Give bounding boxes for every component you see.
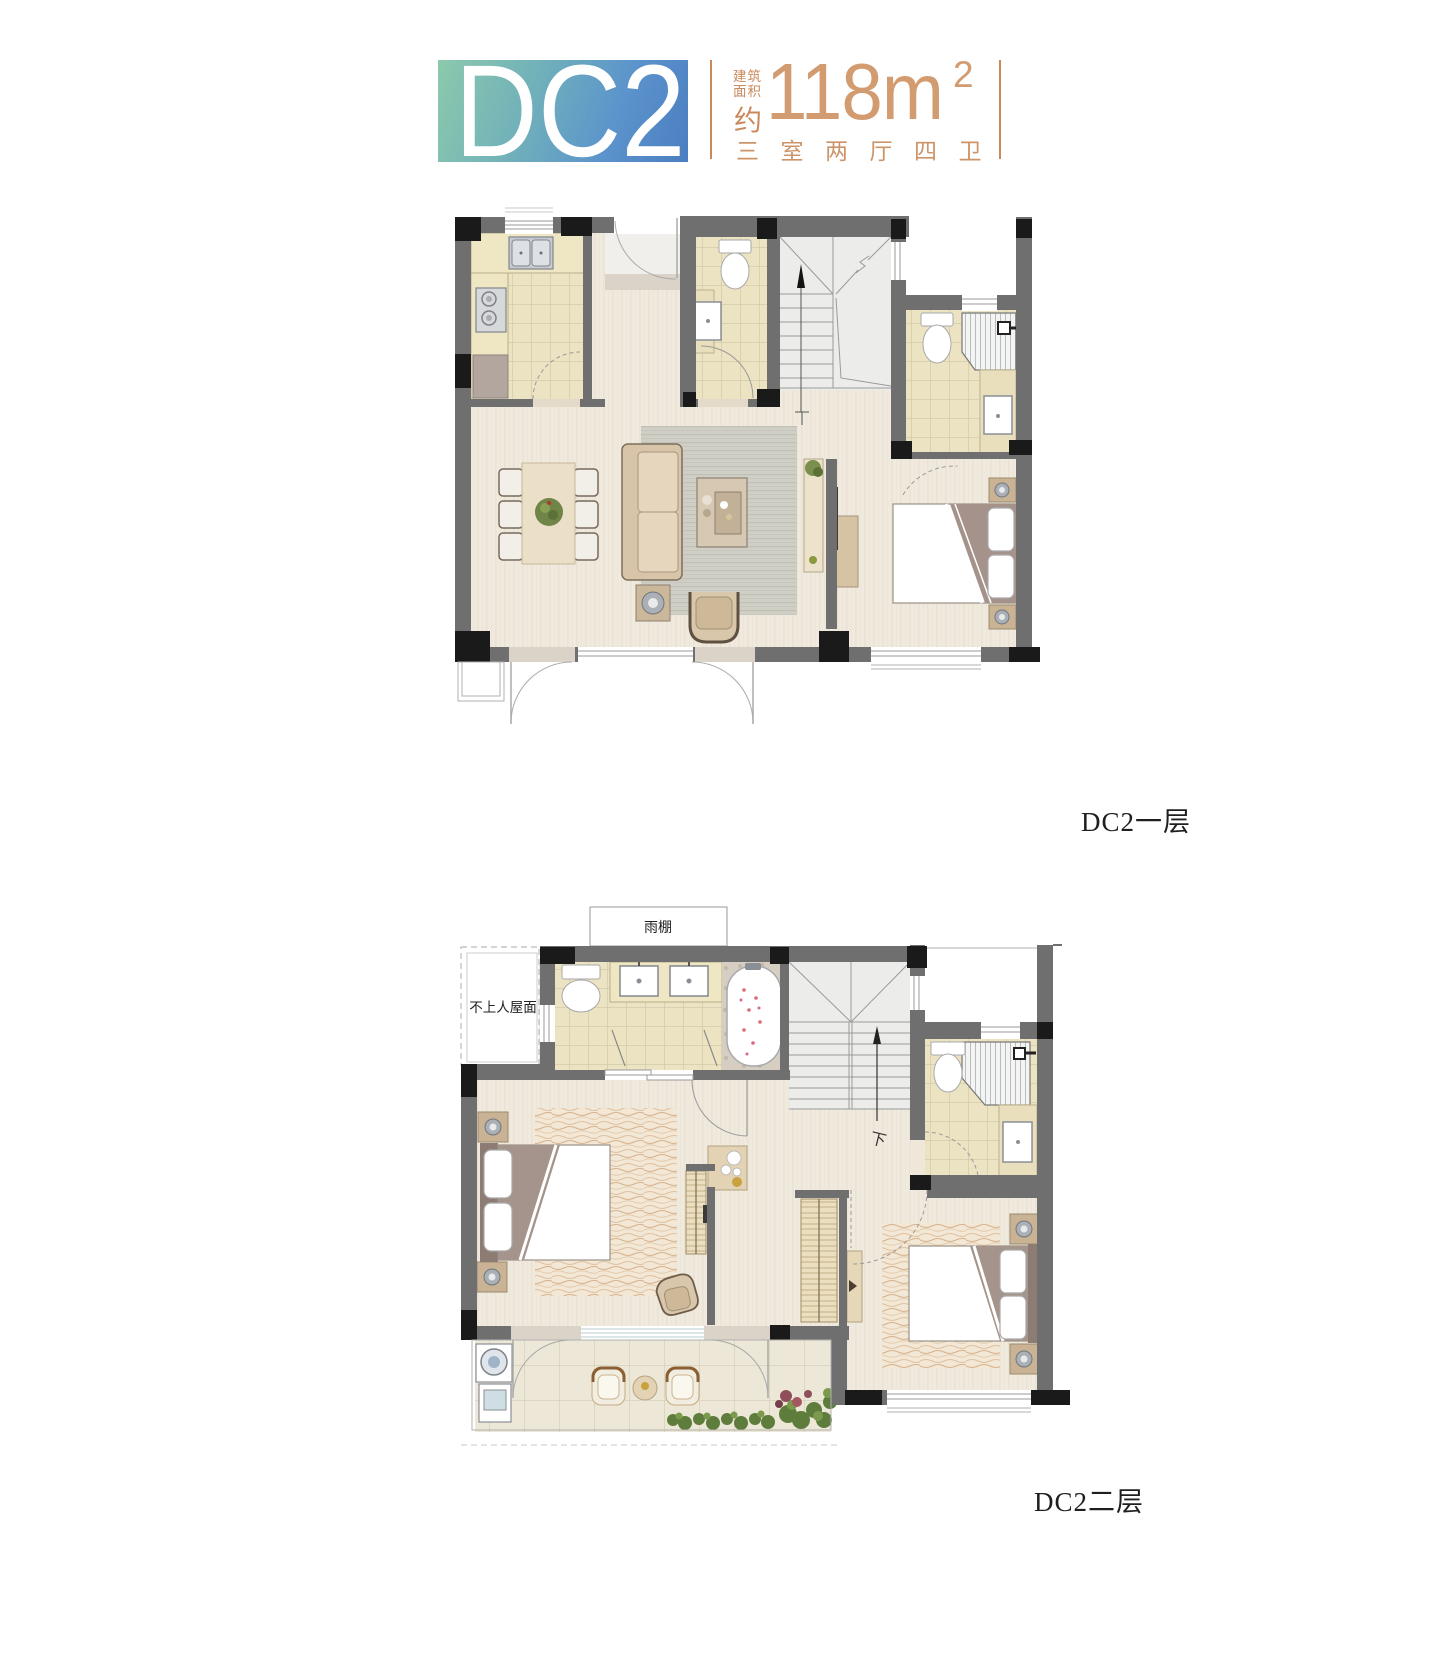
svg-text:雨棚: 雨棚 <box>644 919 672 935</box>
svg-text:DC2: DC2 <box>455 60 686 162</box>
svg-text:不上人屋面: 不上人屋面 <box>469 1000 537 1015</box>
